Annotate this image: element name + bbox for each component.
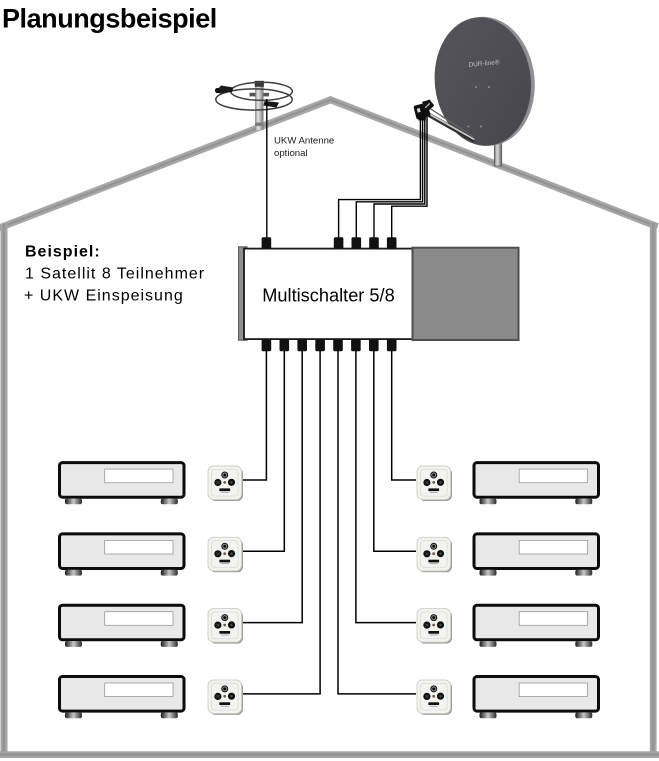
svg-text:optional: optional — [274, 148, 308, 159]
svg-text:Multischalter 5/8: Multischalter 5/8 — [262, 286, 394, 306]
svg-text:Beispiel:: Beispiel: — [25, 244, 101, 261]
svg-text:+ UKW Einspeisung: + UKW Einspeisung — [24, 288, 184, 305]
svg-text:Planungsbeispiel: Planungsbeispiel — [2, 4, 217, 34]
svg-text:1 Satellit 8 Teilnehmer: 1 Satellit 8 Teilnehmer — [25, 266, 205, 283]
svg-text:UKW Antenne: UKW Antenne — [274, 136, 334, 147]
